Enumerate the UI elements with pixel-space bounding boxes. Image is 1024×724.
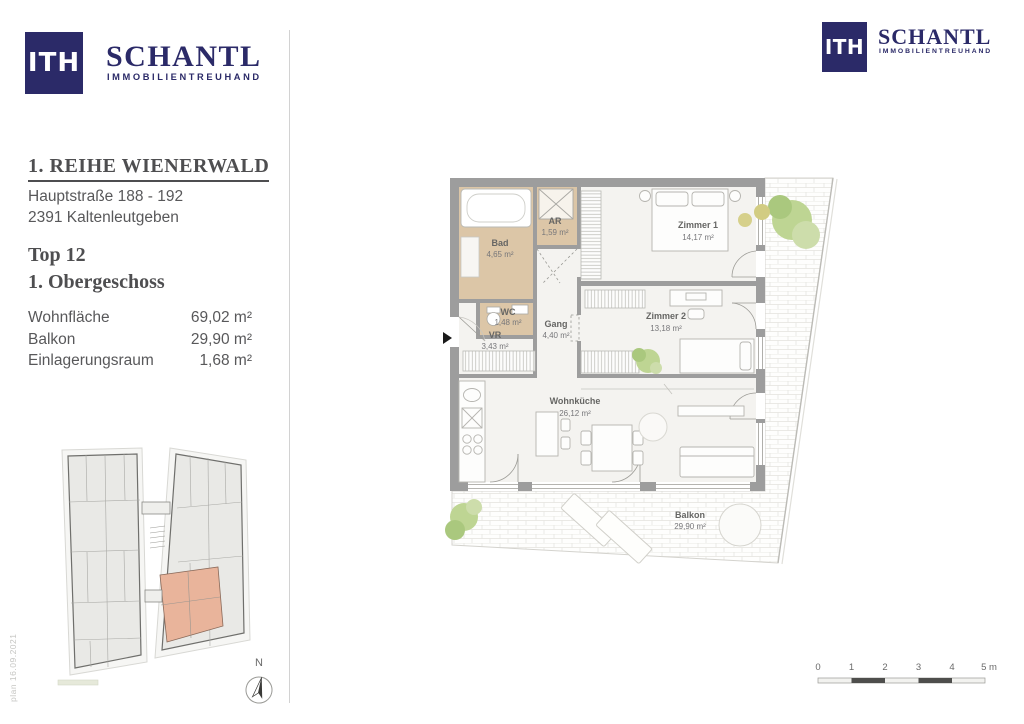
area-value: 1,68 m² — [199, 350, 252, 372]
address-line2: 2391 Kaltenleutgeben — [28, 207, 183, 228]
scale-bar: 0 1 2 3 4 5 m — [808, 658, 1018, 692]
project-address: Hauptstraße 188 - 192 2391 Kaltenleutgeb… — [28, 186, 183, 228]
room-area-vr: 3,43 m² — [481, 342, 508, 351]
zimmer1-wardrobe — [581, 191, 601, 279]
balcony-table — [719, 504, 761, 546]
zimmer2-wardrobe-bottom — [581, 351, 639, 373]
brand-mark-text: ITH — [28, 48, 80, 78]
room-area-wc: 1,48 m² — [494, 318, 521, 327]
area-label: Einlagerungsraum — [28, 350, 154, 372]
unit-block: Top 12 1. Obergeschoss — [28, 242, 165, 296]
room-area-bad: 4,65 m² — [486, 250, 513, 259]
brand-mark-text-right: ITH — [825, 35, 864, 59]
room-label-zimmer1: Zimmer 1 — [678, 220, 718, 230]
zimmer1-plant-icon — [738, 213, 752, 227]
room-label-balkon: Balkon — [675, 510, 705, 520]
room-label-bad: Bad — [491, 238, 508, 248]
brand-name: SCHANTL — [106, 42, 262, 72]
vr-wardrobe — [463, 351, 535, 371]
room-area-gang: 4,40 m² — [542, 331, 569, 340]
scale-bar-segments — [818, 678, 985, 683]
area-label: Balkon — [28, 329, 75, 351]
north-arrow: N — [240, 652, 280, 712]
zimmer2-bed — [680, 339, 754, 373]
brand-tagline-right: IMMOBILIENTREUHAND — [879, 49, 992, 56]
area-row-wohnflaeche: Wohnfläche 69,02 m² — [28, 307, 252, 329]
bath-shelf — [461, 237, 479, 277]
sofa — [680, 447, 754, 477]
site-building-right — [155, 448, 250, 658]
storage-box — [539, 189, 573, 219]
site-building-left — [62, 448, 147, 675]
area-row-balkon: Balkon 29,90 m² — [28, 329, 252, 351]
scale-tick-1: 1 — [849, 662, 854, 673]
area-summary-table: Wohnfläche 69,02 m² Balkon 29,90 m² Einl… — [28, 307, 252, 372]
kitchen-counter — [459, 381, 485, 482]
room-label-wc: WC — [501, 307, 516, 317]
plan-date-note: plan 16.09.2021 — [8, 634, 18, 702]
site-mini-scale — [58, 680, 98, 685]
brand-tagline: IMMOBILIENTREUHAND — [107, 73, 262, 82]
scale-tick-3: 3 — [916, 662, 921, 673]
floor-label: 1. Obergeschoss — [28, 269, 165, 296]
room-label-zimmer2: Zimmer 2 — [646, 311, 686, 321]
area-label: Wohnfläche — [28, 307, 110, 329]
room-area-wohnkueche: 26,12 m² — [559, 409, 591, 418]
north-label: N — [255, 657, 263, 669]
area-row-einlagerungsraum: Einlagerungsraum 1,68 m² — [28, 350, 252, 372]
project-title: 1. REIHE WIENERWALD — [28, 155, 269, 182]
room-area-zimmer1: 14,17 m² — [682, 233, 714, 242]
room-label-vr: VR — [489, 330, 502, 340]
room-area-ar: 1,59 m² — [541, 228, 568, 237]
brand-name-right: SCHANTL — [878, 26, 991, 48]
zimmer2-wardrobe-top — [585, 290, 645, 308]
bathtub — [461, 189, 531, 227]
brand-logo-icon: ITH — [25, 32, 83, 94]
scale-tick-2: 2 — [882, 662, 887, 673]
compass-icon — [244, 675, 275, 706]
unit-label: Top 12 — [28, 242, 165, 269]
room-label-gang: Gang — [544, 319, 567, 329]
brand-logo-icon-right: ITH — [822, 22, 867, 72]
address-line1: Hauptstraße 188 - 192 — [28, 186, 183, 207]
room-label-ar: AR — [549, 216, 562, 226]
sideboard — [678, 406, 744, 416]
room-area-balkon: 29,90 m² — [674, 522, 706, 531]
vertical-divider — [289, 30, 290, 703]
floor-plan: Bad 4,65 m² AR 1,59 m² Zimmer 1 14,17 m²… — [440, 165, 850, 575]
scale-tick-4: 4 — [949, 662, 954, 673]
scale-tick-5: 5 m — [981, 662, 997, 673]
room-area-zimmer2: 13,18 m² — [650, 324, 682, 333]
area-value: 69,02 m² — [191, 307, 252, 329]
scale-tick-0: 0 — [815, 662, 820, 673]
room-label-wohnkueche: Wohnküche — [550, 396, 601, 406]
area-value: 29,90 m² — [191, 329, 252, 351]
rug — [639, 413, 667, 441]
